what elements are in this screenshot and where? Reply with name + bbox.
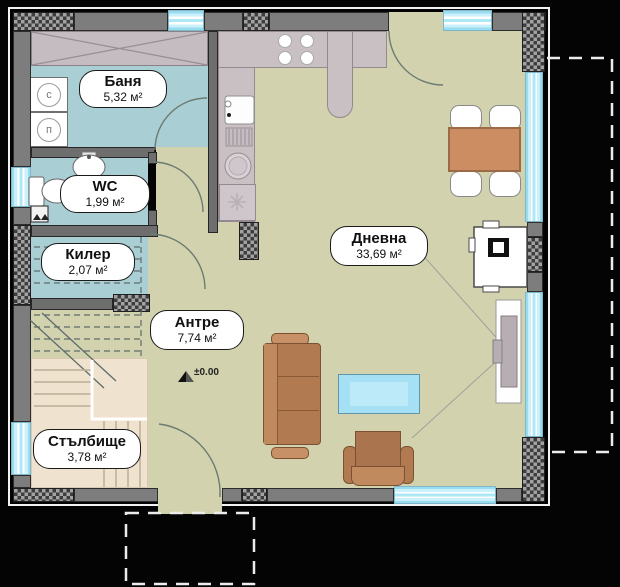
washer-label: с (46, 89, 52, 101)
window (525, 292, 543, 437)
wall-pier (13, 488, 74, 502)
wall-bath-wc (31, 147, 155, 158)
room-area: 7,74 м² (178, 332, 217, 345)
dryer-icon: п (37, 118, 61, 142)
armchair-seat (355, 431, 401, 471)
wall-kitchen-bath (208, 31, 218, 233)
sofa-cushion-divider (278, 410, 319, 411)
balcony-door-threshold (389, 12, 443, 31)
room-area: 3,78 м² (68, 451, 107, 464)
level-annotation: ±0.00 (194, 367, 219, 378)
coffee-table (338, 374, 420, 414)
room-label-banya: Баня 5,32 м² (79, 70, 167, 108)
wall-segment (13, 305, 31, 422)
wall-wc-corridor (148, 152, 157, 164)
wall-segment (204, 12, 243, 31)
room-name: Баня (105, 74, 142, 90)
room-name: WC (93, 179, 118, 195)
wall-pier (243, 12, 269, 31)
sofa-armrest (271, 447, 309, 459)
wall-pier (113, 294, 150, 312)
wall-pier (522, 437, 545, 502)
wall-segment (527, 222, 543, 237)
dryer-label: п (46, 124, 52, 136)
wall-segment (13, 475, 31, 488)
dining-chair (489, 171, 521, 197)
kitchen-counter-top (218, 31, 387, 68)
wall-pier (522, 12, 545, 72)
washer-icon: с (37, 83, 61, 107)
window (11, 167, 31, 207)
room-label-wc: WC 1,99 м² (60, 175, 150, 213)
terrace-dashed-outline (546, 58, 612, 452)
wall-pier (527, 237, 543, 272)
dining-chair (450, 171, 482, 197)
window (525, 72, 543, 222)
kitchen-peninsula (327, 31, 353, 118)
window (394, 486, 496, 504)
room-label-kiler: Килер 2,07 м² (41, 243, 135, 281)
wall-segment (222, 488, 242, 502)
wall-segment (13, 207, 31, 225)
wall-pier (242, 488, 267, 502)
wall-pier (13, 225, 31, 305)
entrance-threshold (158, 488, 222, 514)
wall-pier (13, 12, 74, 31)
wall-segment (13, 31, 31, 167)
wall-segment (527, 272, 543, 292)
wall-segment (74, 12, 168, 31)
washer: с (30, 77, 68, 112)
window (11, 422, 31, 475)
wall-segment (267, 488, 394, 502)
wall-pier (239, 222, 259, 260)
dryer: п (30, 112, 68, 147)
sofa (263, 343, 321, 445)
window (168, 10, 204, 31)
dining-table (448, 127, 521, 172)
room-name: Антре (175, 315, 220, 331)
hallway-floor (148, 237, 218, 488)
window (443, 10, 492, 31)
wardrobe (31, 31, 208, 66)
wall-pantry-bottom (31, 298, 113, 310)
wall-pantry-top (31, 225, 158, 237)
room-name: Дневна (352, 231, 407, 247)
room-label-antre: Антре 7,74 м² (150, 310, 244, 350)
room-name: Килер (65, 247, 110, 263)
wall-segment (496, 488, 522, 502)
room-label-stalbishte: Стълбище 3,78 м² (33, 429, 141, 469)
wall-segment (74, 488, 158, 502)
stair-upper-floor (31, 305, 148, 358)
wall-segment (269, 12, 389, 31)
room-name: Стълбище (48, 434, 126, 450)
room-area: 2,07 м² (69, 264, 108, 277)
sofa-cushion-divider (278, 376, 319, 377)
armchair-backrest (351, 466, 405, 486)
porch-dashed-outline (126, 513, 254, 584)
room-area: 1,99 м² (86, 196, 125, 209)
room-area: 33,69 м² (356, 248, 402, 261)
room-area: 5,32 м² (104, 91, 143, 104)
coffee-table-top (350, 382, 408, 406)
fridge (219, 184, 256, 221)
room-label-dnevna: Дневна 33,69 м² (330, 226, 428, 266)
sofa-backrest (264, 344, 278, 444)
floor-plan: с п (0, 0, 620, 587)
